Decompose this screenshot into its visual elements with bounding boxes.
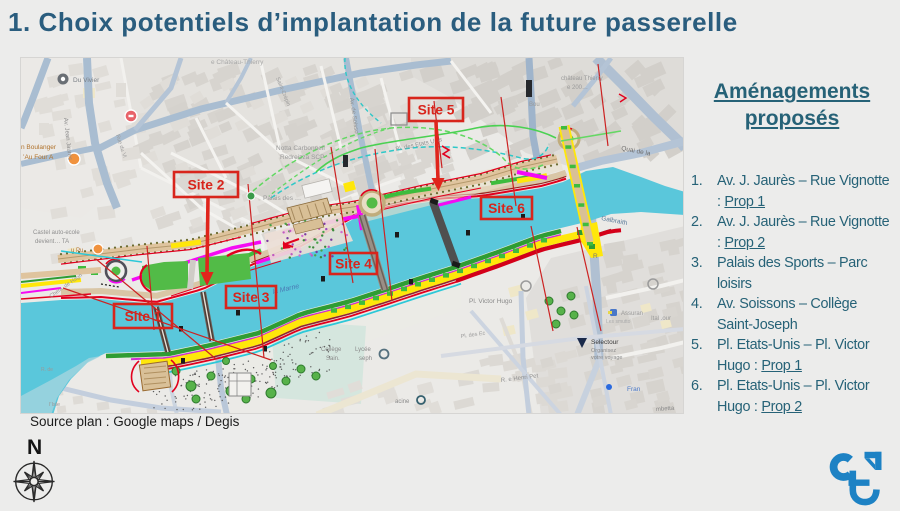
svg-text:’Au Four A: ’Au Four A	[23, 154, 54, 161]
svg-text:Lycée: Lycée	[355, 347, 371, 353]
svg-text:e Château-Thierry: e Château-Thierry	[211, 59, 264, 66]
svg-text:Collège: Collège	[321, 347, 342, 353]
svg-text:acine: acine	[395, 399, 410, 405]
svg-text:Site 5: Site 5	[418, 103, 455, 118]
svg-text:Site 3: Site 3	[233, 290, 270, 305]
svg-text:Site 2: Site 2	[188, 178, 225, 193]
svg-text:Selectour: Selectour	[591, 339, 619, 346]
svg-text:Notta Carbonnell: Notta Carbonnell	[276, 145, 325, 152]
svg-text:devient… TA: devient… TA	[35, 239, 69, 245]
svg-text:votre voyage: votre voyage	[591, 355, 623, 361]
svg-text:Du Vivier: Du Vivier	[73, 77, 100, 84]
svg-text:R. de: R. de	[41, 367, 53, 373]
svg-text:Organisez: Organisez	[591, 348, 616, 354]
svg-text:n Boulanger: n Boulanger	[21, 144, 57, 151]
svg-text:Palais des …: Palais des …	[263, 195, 301, 202]
svg-text:Ital .our: Ital .our	[651, 316, 671, 322]
svg-text:Castel auto-ecole: Castel auto-ecole	[33, 230, 80, 236]
svg-text:Bou: Bou	[529, 102, 540, 108]
svg-text:Site 1: Site 1	[125, 309, 162, 324]
svg-text:Les smutto: Les smutto	[606, 319, 631, 325]
svg-text:Site 6: Site 6	[488, 201, 525, 216]
svg-text:e 200…: e 200…	[567, 85, 588, 91]
svg-text:Pl. Victor Hugo: Pl. Victor Hugo	[469, 298, 513, 305]
svg-text:Site 4: Site 4	[335, 257, 372, 272]
svg-text:château Thierry: château Thierry	[561, 76, 603, 82]
svg-text:Redreizza SCP: Redreizza SCP	[280, 154, 324, 161]
svg-text:Assuran: Assuran	[621, 311, 643, 317]
svg-text:Sain.: Sain.	[326, 356, 340, 362]
svg-text:R: R	[593, 253, 598, 260]
svg-text:l’Isle: l’Isle	[49, 402, 60, 408]
svg-text:seph: seph	[359, 356, 372, 362]
svg-text:Fran: Fran	[627, 386, 641, 393]
